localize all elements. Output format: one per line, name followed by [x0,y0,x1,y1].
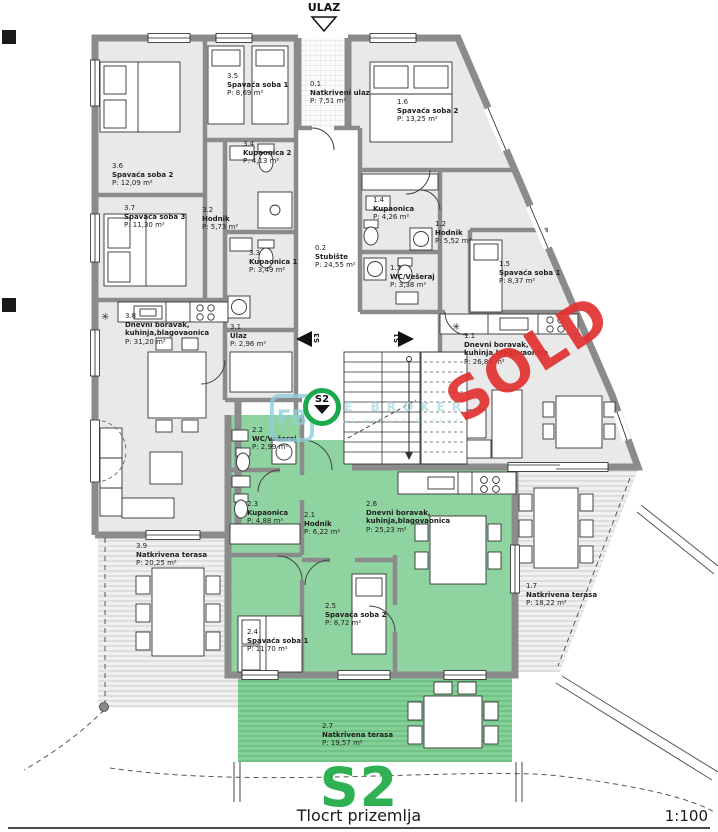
entrance-arrow-icon [312,17,336,31]
floor-plan-page: ✳ ✳ [0,0,718,832]
frame-marker-top [2,30,16,44]
room-label-3-3: 3.3Kupaonica 1P: 3,49 m² [249,249,297,275]
room-label-1-6: 1.6Spavaća soba 2P: 13,25 m² [397,98,458,124]
room-label-1-2: 1.2HodnikP: 5,52 m² [435,220,471,246]
frame-marker-mid [2,298,16,312]
plan-title: Tlocrt prizemlja [0,806,718,825]
room-label-1-7: 1.7Natkrivena terasaP: 18,22 m² [526,582,597,608]
room-label-0-2: 0.2StubišteP: 24,55 m² [315,244,356,270]
watermark-line2: real estate broker [328,417,468,425]
room-label-2-4: 2.4Spavaća soba 1P: 11,70 m² [247,628,308,654]
plan-scale: 1:100 [665,807,708,825]
room-label-2-3: 2.3KupaonicaP: 4,88 m² [247,500,288,526]
room-label-2-7: 2.7Natkrivena terasaP: 19,57 m² [322,722,393,748]
room-label-2-6: 2.6Dnevni boravak,kuhinja,blagovaonicaP:… [366,500,450,534]
room-label-3-5: 3.5Spavaća soba 1P: 8,69 m² [227,72,288,98]
unit-s2-marker-label: S2 [308,394,336,405]
terrace-post [100,703,109,712]
room-label-3-8: 3.8Dnevni boravak,kuhinja,blagovaonicaP:… [125,312,209,346]
room-label-3-4: 3.4Kupaonica 2P: 4,13 m² [243,140,291,166]
broker-watermark: FB RE BROKER real estate broker [270,394,468,442]
kitchen-symbol-1: ✳ [101,312,109,323]
watermark-line1: RE BROKER [328,400,468,414]
room-label-1-3: 1.3WC/VešerajP: 3,38 m² [390,264,435,290]
room-label-3-7: 3.7Spavaća soba 3P: 11,30 m² [124,204,185,230]
room-label-2-1: 2.1HodnikP: 6,22 m² [304,511,340,537]
unit-s2-marker: S2 [303,388,341,426]
room-label-0-1: 0.1Natkriveni ulazP: 7,51 m² [310,80,370,106]
stair-direction-s1-label: S1 [393,333,401,343]
room-label-3-6: 3.6Spavaća soba 2P: 12,09 m² [112,162,173,188]
room-label-3-2: 3.2HodnikP: 5,73 m² [202,206,238,232]
unit-s2-marker-arrow-icon [314,405,330,414]
room-label-3-1: 3.1UlazP: 2,96 m² [230,323,266,349]
room-label-2-5: 2.5Spavaća soba 2P: 8,72 m² [325,602,386,628]
room-label-3-9: 3.9Natkrivena terasaP: 20,25 m² [136,542,207,568]
room-label-1-5: 1.5Spavaća soba 1P: 8,37 m² [499,260,560,286]
entrance-label: ULAZ [296,1,352,14]
room-label-1-4: 1.4KupaonicaP: 4,26 m² [373,196,414,222]
stair-direction-s3-label: S3 [313,333,321,343]
